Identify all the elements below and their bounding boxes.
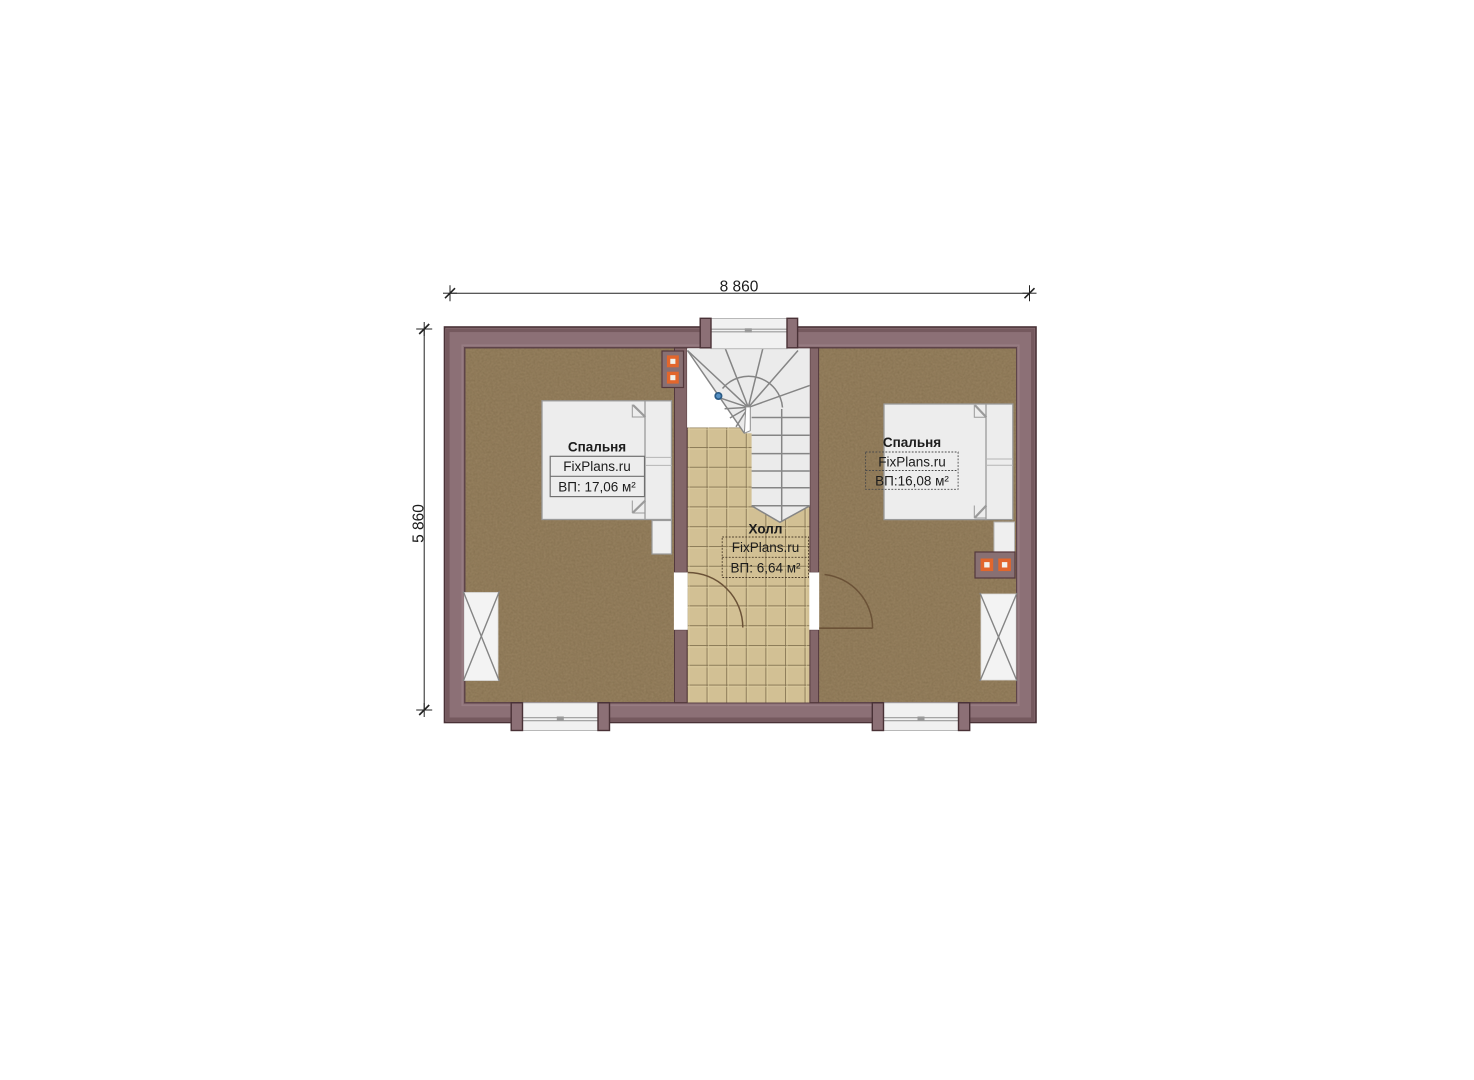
svg-text:ВП:16,08 м²: ВП:16,08 м² (875, 474, 949, 489)
svg-text:FixPlans.ru: FixPlans.ru (732, 540, 800, 555)
svg-text:ВП: 6,64 м²: ВП: 6,64 м² (730, 561, 801, 576)
svg-text:8 860: 8 860 (720, 279, 759, 296)
svg-text:ВП: 17,06 м²: ВП: 17,06 м² (558, 480, 636, 495)
svg-text:Спальня: Спальня (883, 435, 941, 450)
svg-text:5 860: 5 860 (410, 504, 427, 543)
svg-text:Холл: Холл (749, 522, 783, 537)
svg-text:Спальня: Спальня (568, 440, 626, 455)
svg-text:FixPlans.ru: FixPlans.ru (563, 459, 631, 474)
svg-text:FixPlans.ru: FixPlans.ru (878, 455, 946, 470)
